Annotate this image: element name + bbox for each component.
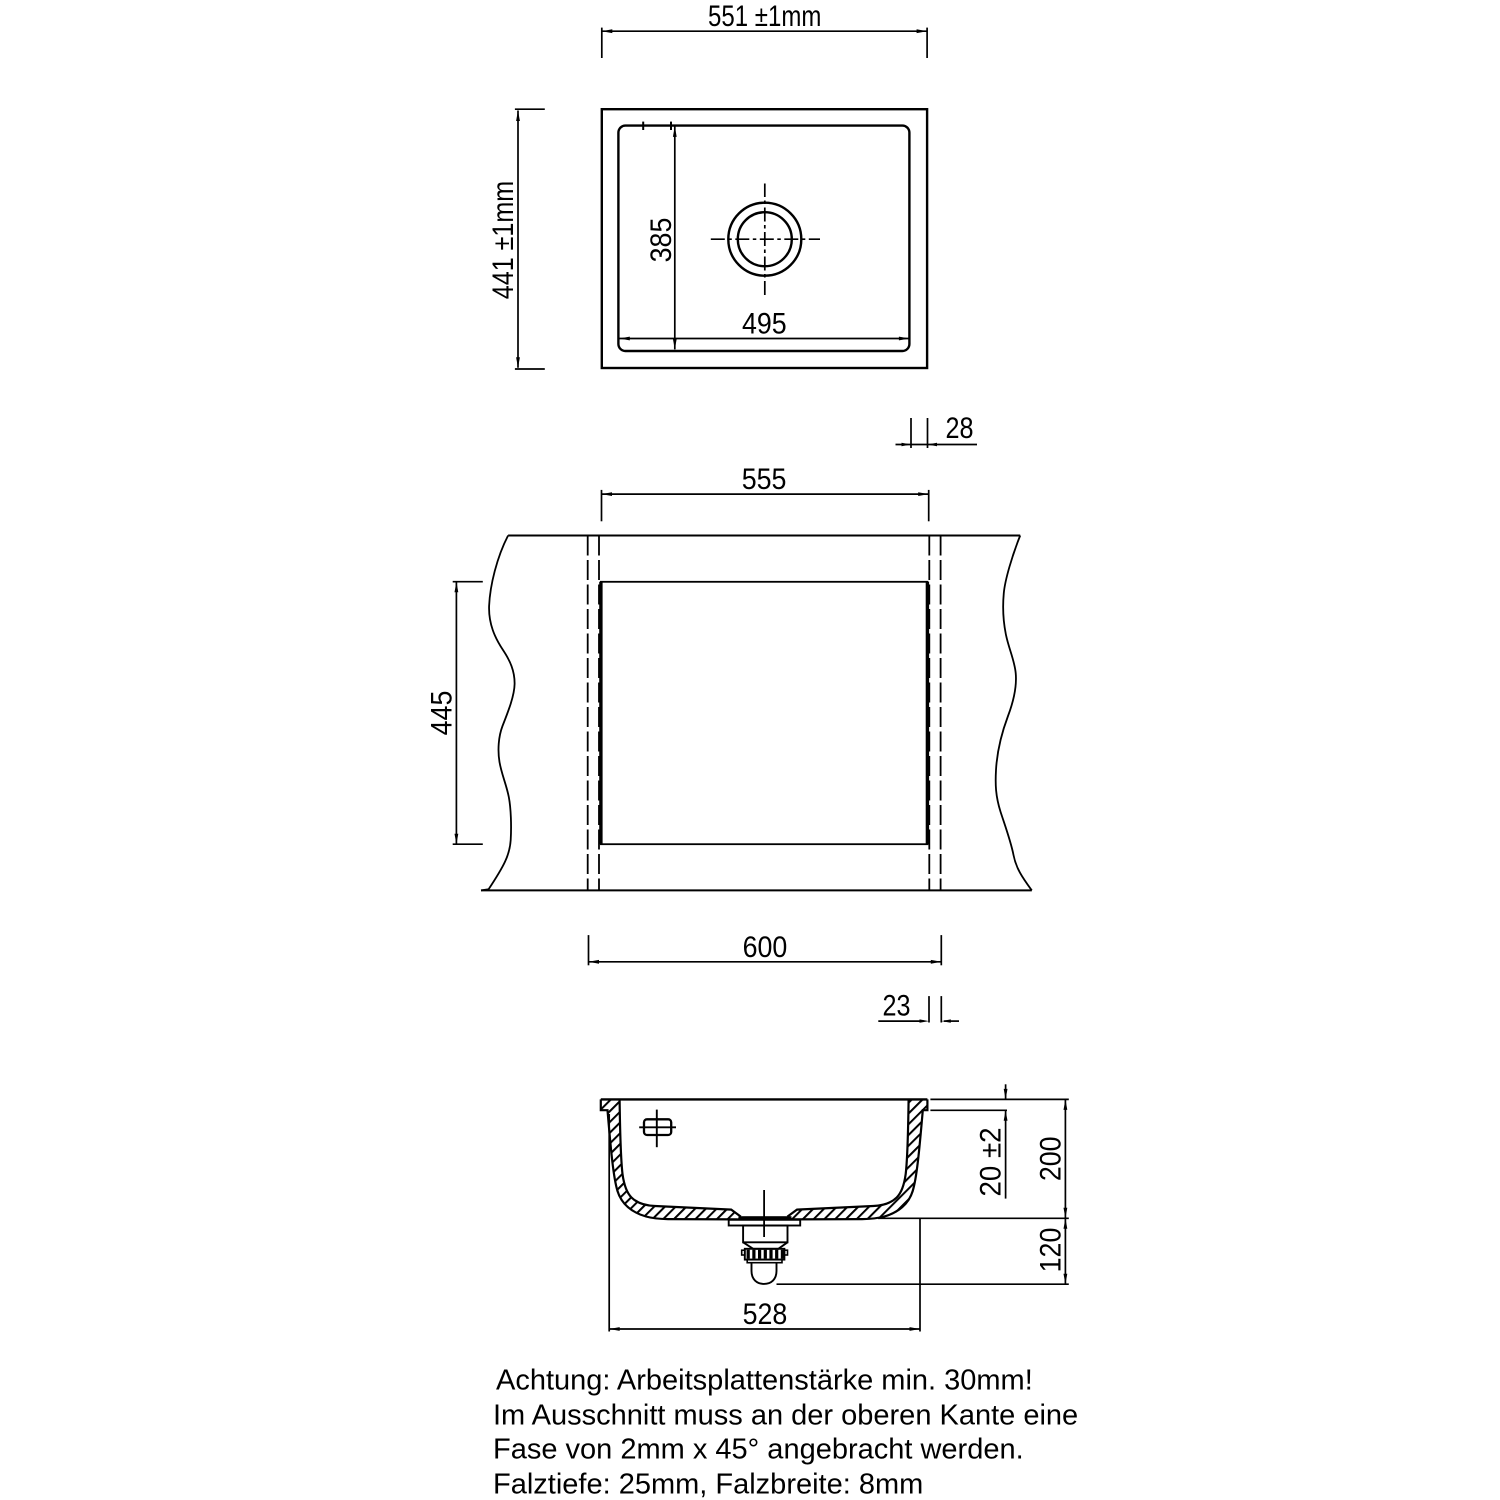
svg-text:28: 28	[946, 412, 974, 445]
svg-text:Fase von 2mm x 45° angebracht: Fase von 2mm x 45° angebracht werden.	[493, 1434, 1024, 1466]
svg-text:495: 495	[742, 308, 787, 341]
svg-text:528: 528	[743, 1298, 788, 1331]
svg-text:120: 120	[1034, 1228, 1067, 1273]
svg-text:441 ±1mm: 441 ±1mm	[487, 181, 520, 299]
svg-text:555: 555	[742, 463, 787, 496]
svg-text:Achtung: Arbeitsplattenstärke: Achtung: Arbeitsplattenstärke min. 30mm!	[496, 1365, 1033, 1397]
svg-text:200: 200	[1034, 1136, 1067, 1181]
svg-text:23: 23	[883, 990, 911, 1023]
svg-text:385: 385	[645, 218, 678, 263]
svg-text:445: 445	[425, 691, 458, 736]
svg-text:600: 600	[743, 931, 788, 964]
svg-text:20 ±2: 20 ±2	[975, 1128, 1008, 1197]
svg-text:Im Ausschnitt muss an der ober: Im Ausschnitt muss an der oberen Kante e…	[493, 1400, 1078, 1432]
svg-text:551 ±1mm: 551 ±1mm	[708, 0, 821, 33]
svg-text:Falztiefe: 25mm, Falzbreite: 8: Falztiefe: 25mm, Falzbreite: 8mm	[493, 1469, 923, 1500]
